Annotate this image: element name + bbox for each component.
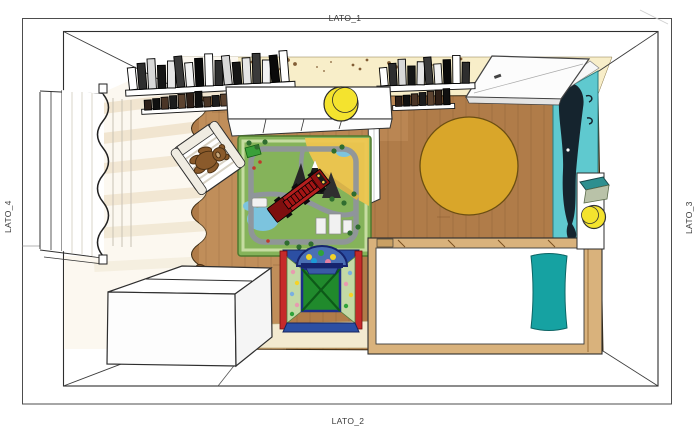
side-label-left: LATO_4 — [3, 200, 13, 233]
round-rug — [420, 117, 518, 215]
bed — [368, 238, 602, 354]
bench-top — [226, 87, 392, 119]
side-label-top: LATO_1 — [329, 13, 362, 23]
ball-lamp — [582, 206, 606, 229]
headboard-area — [577, 173, 609, 249]
bed-pillow — [531, 254, 567, 331]
curtain-rod-finial-top — [99, 84, 107, 93]
chest-front — [107, 292, 236, 366]
floor-plan-canvas: LATO_1 LATO_2 LATO_4 LATO_3 — [0, 0, 700, 437]
pouf — [324, 87, 358, 121]
curtain-rod-finial-bottom — [99, 255, 107, 264]
floor-plan-svg: LATO_1 LATO_2 LATO_4 LATO_3 — [0, 0, 700, 437]
side-label-bottom: LATO_2 — [332, 416, 365, 426]
storage-bench — [226, 87, 392, 136]
corner-artifact-line — [640, 10, 668, 24]
side-label-right: LATO_3 — [684, 201, 694, 234]
